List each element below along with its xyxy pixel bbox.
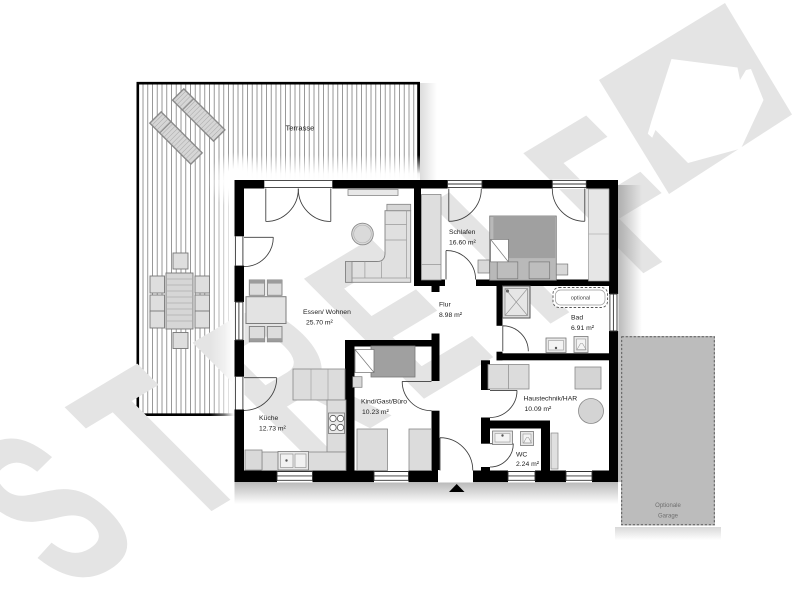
svg-text:Optionale: Optionale bbox=[655, 503, 681, 509]
svg-text:Schlafen: Schlafen bbox=[449, 229, 476, 236]
svg-text:8.98 m²: 8.98 m² bbox=[439, 312, 463, 319]
svg-text:Terrasse: Terrasse bbox=[286, 124, 315, 133]
svg-text:25.70 m²: 25.70 m² bbox=[306, 320, 334, 327]
svg-text:Flur: Flur bbox=[439, 302, 451, 309]
svg-text:6.91 m²: 6.91 m² bbox=[571, 325, 595, 332]
svg-text:12.73 m²: 12.73 m² bbox=[259, 426, 287, 433]
svg-text:16.60 m²: 16.60 m² bbox=[449, 240, 477, 247]
svg-text:10.09 m²: 10.09 m² bbox=[525, 406, 553, 413]
svg-text:10.23 m²: 10.23 m² bbox=[362, 409, 390, 416]
svg-text:Bad: Bad bbox=[571, 315, 583, 322]
svg-text:Küche: Küche bbox=[259, 415, 278, 422]
svg-text:2.24 m²: 2.24 m² bbox=[516, 461, 540, 468]
svg-text:Haustechnik/HAR: Haustechnik/HAR bbox=[524, 396, 578, 403]
svg-text:WC: WC bbox=[516, 452, 527, 459]
svg-text:Kind/Gast/Büro: Kind/Gast/Büro bbox=[361, 399, 407, 406]
svg-text:Garage: Garage bbox=[658, 514, 679, 520]
svg-text:Essen/ Wohnen: Essen/ Wohnen bbox=[303, 309, 351, 316]
svg-text:optional: optional bbox=[571, 296, 591, 302]
